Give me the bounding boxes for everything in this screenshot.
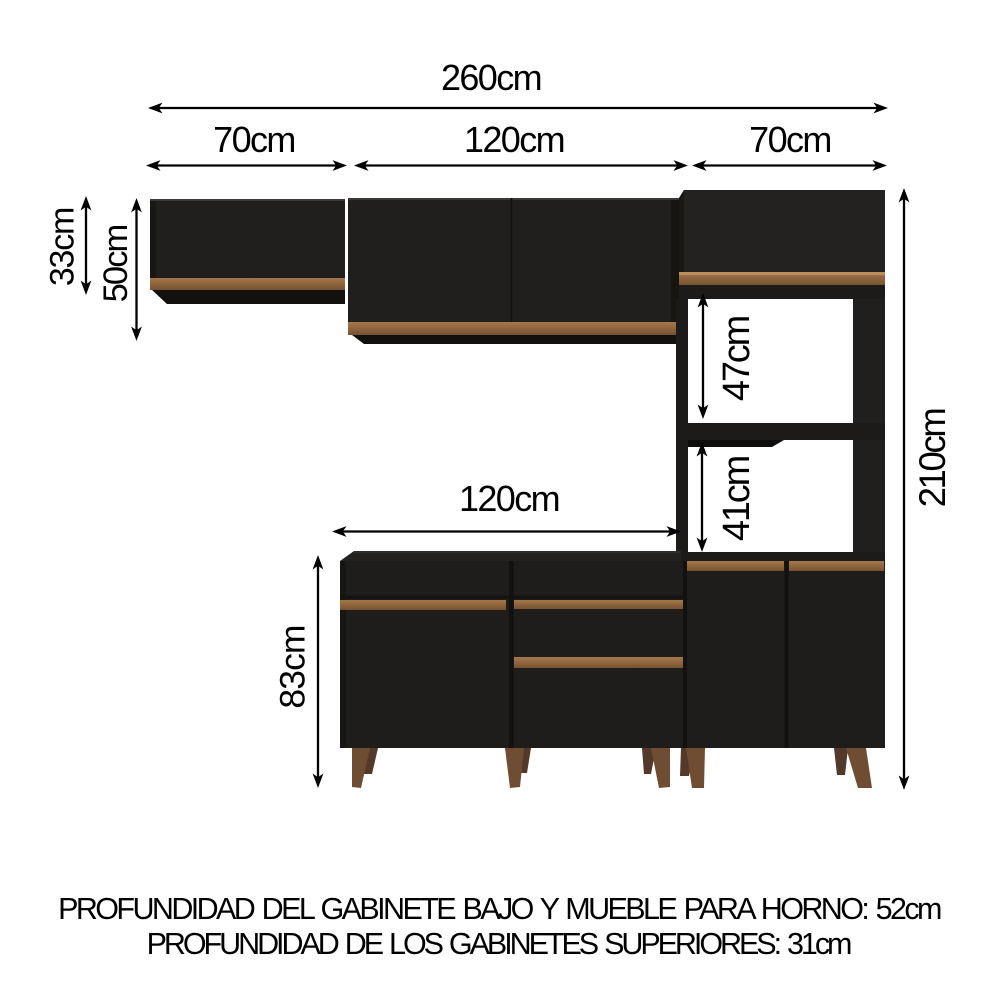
svg-text:120cm: 120cm	[464, 119, 564, 160]
svg-text:83cm: 83cm	[273, 625, 313, 708]
svg-text:50cm: 50cm	[97, 225, 135, 302]
svg-text:PROFUNDIDAD DEL GABINETE BAJO: PROFUNDIDAD DEL GABINETE BAJO Y MUEBLE P…	[58, 892, 941, 926]
svg-text:260cm: 260cm	[441, 57, 541, 98]
svg-text:33cm: 33cm	[44, 208, 82, 286]
svg-text:47cm: 47cm	[716, 316, 758, 401]
svg-text:210cm: 210cm	[912, 409, 953, 508]
svg-text:70cm: 70cm	[749, 119, 831, 160]
svg-text:120cm: 120cm	[459, 478, 559, 519]
svg-text:41cm: 41cm	[716, 456, 758, 541]
svg-text:PROFUNDIDAD DE LOS GABINETES S: PROFUNDIDAD DE LOS GABINETES SUPERIORES:…	[147, 927, 851, 961]
svg-text:70cm: 70cm	[213, 119, 295, 160]
